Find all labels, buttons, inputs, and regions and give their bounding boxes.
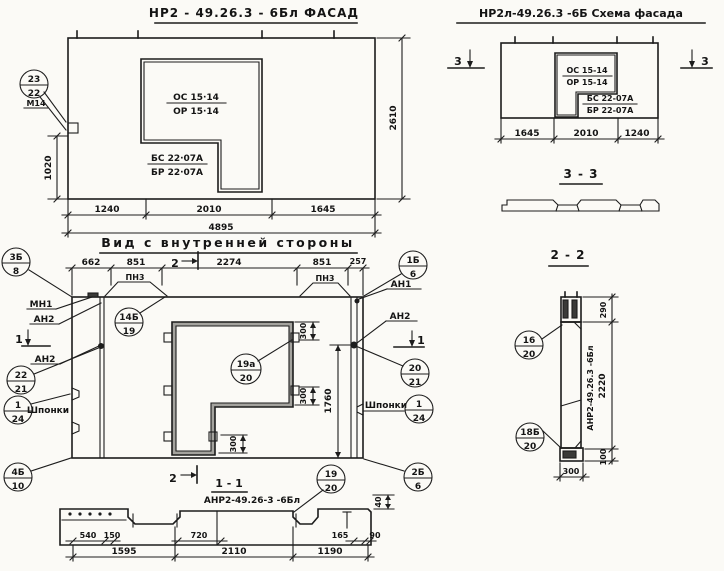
callout-3b-8: 3Б 8 [2,248,72,297]
svg-text:6: 6 [415,482,421,492]
facade-dim-left-1020: 1020 [44,133,68,202]
dim-1645: 1645 [514,129,539,139]
dim-2010: 2010 [573,129,598,139]
section-3-3-title: 3 - 3 [563,167,598,181]
blueprint-svg: НР2 - 49.26.3 - 6Бл ФАСАД ОС 15·14 ОР 15… [0,0,724,571]
pn3-symbol-left: ПН3 [105,273,167,296]
schema-view: НР2л-49.26.3 -6Б Схема фасада ОС 15-14 О… [448,7,712,143]
callout-2b-6: 2Б 6 [364,459,432,492]
svg-text:1760: 1760 [324,388,334,413]
dim-257: 257 [350,257,367,266]
mark-br: БР 22-07А [587,106,634,115]
schema-lifting-ticks [515,37,653,43]
schema-title: НР2л-49.26.3 -6Б Схема фасада [479,7,683,20]
svg-text:3: 3 [454,55,462,68]
anchor-plate [68,123,78,133]
section-2-marker-bottom: 2 [169,466,197,485]
section-1-1-dims-upper: 540 150 720 165 90 [66,531,381,544]
svg-text:20: 20 [325,484,338,494]
mark-os: ОС 15-14 [566,66,607,75]
svg-text:24: 24 [413,414,426,424]
facade-dim-right-2610: 2610 [377,35,410,202]
dim-2274: 2274 [216,258,241,268]
schema-marks: ОС 15-14 ОР 15-14 БС 22-07А БР 22-07А [563,66,637,115]
svg-text:150: 150 [104,531,121,540]
svg-text:ПН3: ПН3 [126,273,145,282]
dim-300-top: 300 [295,322,319,340]
mark-bs: БС 22·07А [151,154,203,164]
callout-14b-19: 14Б 19 [115,297,165,337]
dim-1240: 1240 [94,205,119,215]
svg-text:14Б: 14Б [119,313,139,323]
svg-text:18Б: 18Б [520,428,540,438]
svg-text:3Б: 3Б [9,253,22,263]
schema-section-marker-left: 3 [448,50,484,68]
facade-lifting-ticks [77,31,334,38]
svg-text:16: 16 [523,336,536,346]
svg-text:2: 2 [171,257,179,270]
section-2-marker-top: 2 [171,252,198,270]
label-shponki-right: Шпонки [363,401,407,411]
svg-text:1: 1 [417,334,425,347]
svg-text:20: 20 [524,442,537,452]
svg-text:4Б: 4Б [11,468,24,478]
callout-bottom: 22 [28,89,41,99]
drawing-sheet: НР2 - 49.26.3 - 6Бл ФАСАД ОС 15·14 ОР 15… [0,0,724,571]
dim-2610: 2610 [389,105,399,130]
svg-text:720: 720 [191,531,208,540]
svg-text:1: 1 [15,401,21,411]
section-2-2-profile [560,292,583,461]
callout-1-24-right: 1 24 [405,395,433,424]
svg-text:20: 20 [240,374,253,384]
dim-662: 662 [82,258,101,268]
svg-text:2110: 2110 [221,547,246,557]
svg-text:300: 300 [563,467,580,476]
svg-text:6: 6 [410,270,416,280]
callout-top: 23 [28,75,41,85]
mark-os: ОС 15·14 [173,93,219,103]
dim-300-mid: 300 [295,387,319,405]
svg-text:20: 20 [523,350,536,360]
section-1-1-label: АНР2-49.26-3 -6Бл [204,496,300,506]
label-mn1: МН1 [27,297,92,310]
svg-text:290: 290 [599,301,608,318]
label-shponki-left: Шпонки [27,406,69,416]
svg-text:100: 100 [599,448,608,465]
svg-text:165: 165 [332,531,349,540]
inner-title: Вид с внутренней стороны [101,235,354,250]
svg-text:22: 22 [15,371,28,381]
dim-851a: 851 [127,258,146,268]
callout-19a-20: 19а 20 [231,340,292,384]
svg-text:2220: 2220 [598,373,608,398]
schema-dims-bottom: 1645 2010 1240 [495,118,664,143]
section-2-2-label: АНР2-49.26.3 -6Бл [586,345,595,430]
section-3-3: 3 - 3 [502,167,659,211]
svg-text:10: 10 [12,482,25,492]
svg-text:300: 300 [299,387,308,404]
facade-marks: ОС 15·14 ОР 15·14 БС 22·07А БР 22·07А [148,93,226,178]
callout-19-20: 19 20 [294,465,345,512]
dim-851b: 851 [313,258,332,268]
mark-or: ОР 15·14 [173,107,219,117]
dim-4895: 4895 [208,223,233,233]
svg-text:Шпонки: Шпонки [365,401,407,411]
pn3-symbol-right: ПН3 [300,274,350,296]
callout-16-20: 16 20 [515,325,562,360]
inner-view: Вид с внутренней стороны 662 851 2 [2,235,433,492]
section-1-marker-left: 1 [15,330,50,346]
dim-40: 40 [373,495,394,509]
svg-text:19: 19 [325,470,338,480]
svg-text:8: 8 [13,267,19,277]
section-1-1: 1 - 1 АНР2-49.26-3 -6Бл 19 20 540 150 [60,465,394,561]
facade-dims-bottom: 1240 2010 1645 4895 [62,199,381,237]
svg-text:1: 1 [15,333,23,346]
svg-text:3: 3 [701,55,709,68]
svg-text:24: 24 [12,415,25,425]
mark-bs: БС 22-07А [587,94,634,103]
callout-18b-20: 18Б 20 [516,423,561,452]
section-1-1-title: 1 - 1 [215,477,243,490]
mark-br: БР 22·07А [151,168,203,178]
mark-or: ОР 15-14 [566,78,607,87]
svg-text:40: 40 [374,496,383,508]
section-2-2-title: 2 - 2 [550,248,585,262]
section-3-3-profile [502,200,659,211]
svg-text:20: 20 [409,364,422,374]
svg-text:300: 300 [229,435,238,452]
svg-text:1190: 1190 [317,547,342,557]
svg-text:540: 540 [80,531,97,540]
facade-callout-23-22: 23 22 М14 [20,70,78,133]
label-an1-right: АН1 [359,280,421,299]
dim-2010: 2010 [196,205,221,215]
dim-1645: 1645 [310,205,335,215]
label-an2-right: АН2 [357,312,417,343]
svg-text:ПН3: ПН3 [316,274,335,283]
dim-300-bottom: 300 [219,435,247,453]
inner-opening-anchor-tabs [164,333,299,441]
svg-text:19а: 19а [237,360,256,370]
svg-text:90: 90 [369,531,381,540]
svg-text:1595: 1595 [111,547,136,557]
svg-text:21: 21 [15,385,28,395]
svg-text:Шпонки: Шпонки [27,406,69,416]
facade-view: НР2 - 49.26.3 - 6Бл ФАСАД ОС 15·14 ОР 15… [20,6,410,237]
section-1-marker-right: 1 [394,331,425,347]
svg-text:19: 19 [123,327,136,337]
label-an2-left-mid: АН2 [31,346,99,365]
svg-text:1Б: 1Б [406,256,419,266]
callout-20-21: 20 21 [358,347,429,388]
callout-4b-10: 4Б 10 [4,458,71,492]
svg-text:2: 2 [169,472,177,485]
dim-1240: 1240 [624,129,649,139]
section-2-2: 2 - 2 АНР2-49.26.3 -6Бл 290 2220 100 [515,248,618,481]
svg-text:21: 21 [409,378,422,388]
dim-1020: 1020 [44,155,54,180]
svg-text:2Б: 2Б [411,468,424,478]
facade-title: НР2 - 49.26.3 - 6Бл ФАСАД [149,6,359,20]
edge-details [72,293,363,434]
svg-text:300: 300 [299,322,308,339]
schema-section-marker-right: 3 [681,50,712,68]
svg-text:1: 1 [416,400,422,410]
